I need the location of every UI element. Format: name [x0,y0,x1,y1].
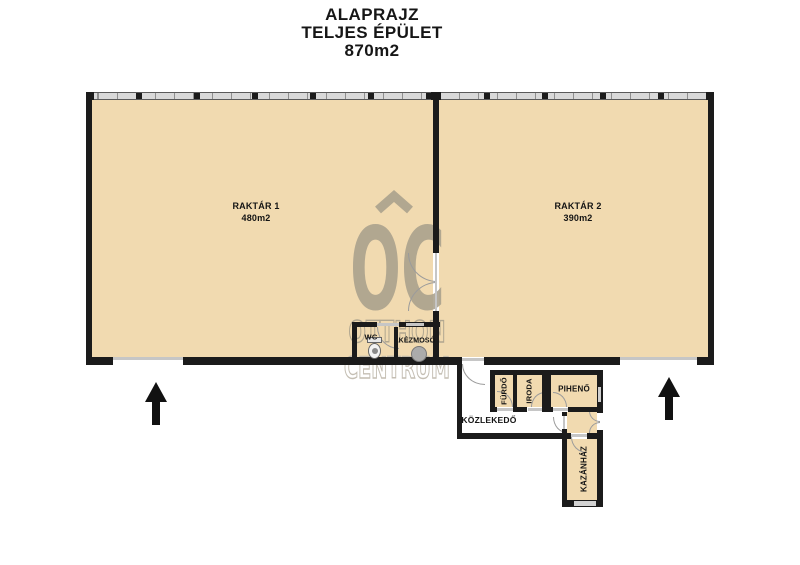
door-opening [435,253,437,311]
label-kozlekedo: KÖZLEKEDŐ [461,415,516,425]
label-raktar1-area: 480m2 [241,213,270,223]
arrow-shaft [152,402,160,425]
wall [431,92,441,100]
toilet-icon [372,348,378,354]
label-piheno: PIHENŐ [558,385,590,394]
wall-bottom [697,357,714,365]
wall [542,375,551,407]
title-line-2: TELJES ÉPÜLET [0,24,744,42]
wall [490,407,497,412]
room-raktar2 [439,100,708,357]
wall [457,365,462,439]
wall [568,407,603,412]
wall [513,407,527,412]
door-opening [462,358,484,361]
wall-bottom [86,357,113,365]
label-kezmoso: KÉZMOSÓ [399,338,436,345]
label-furdo: FÜRDŐ [500,377,509,405]
door-opening [528,408,542,411]
wall-bottom [484,357,620,365]
sink-icon [411,346,427,362]
arrow-shaft [665,397,673,420]
wall [457,433,571,439]
wall-left [86,92,92,365]
watermark-logo: OC OTTHON CENTRUM [330,185,470,385]
label-raktar1: RAKTÁR 1 [232,201,279,211]
window-kazanhaz [574,501,596,506]
wall [597,430,603,507]
door-opening [406,323,424,326]
door-opening [563,416,565,429]
label-iroda: IRODA [525,378,534,403]
wall [562,429,567,439]
wall [562,439,567,500]
wall [352,322,357,365]
gate-opening-raktar2 [620,357,697,360]
label-wc: WC [365,333,378,342]
wall [542,407,553,412]
door-opening [497,408,513,411]
arrow-head [145,382,167,402]
entrance-arrow-icon [658,377,680,420]
label-raktar2: RAKTÁR 2 [554,201,601,211]
entrance-arrow-icon [145,382,167,425]
window-piheno [598,387,601,402]
wall [394,327,398,365]
title-line-3: 870m2 [0,42,744,60]
wall [513,375,517,407]
window-band [86,92,714,100]
door-opening [377,323,399,326]
door-opening [571,434,587,437]
wall-divider [433,100,439,253]
label-raktar2-area: 390m2 [563,213,592,223]
arrow-head [658,377,680,397]
wall [490,370,495,412]
gate-opening-raktar1 [113,357,183,360]
wall-right [708,92,714,365]
label-kazanhaz: KAZÁNHÁZ [580,446,589,492]
title-line-1: ALAPRAJZ [0,6,744,24]
plan-title: ALAPRAJZ TELJES ÉPÜLET 870m2 [0,6,744,60]
door-opening [553,408,568,411]
floor-plan: OC OTTHON CENTRUM [0,0,800,565]
